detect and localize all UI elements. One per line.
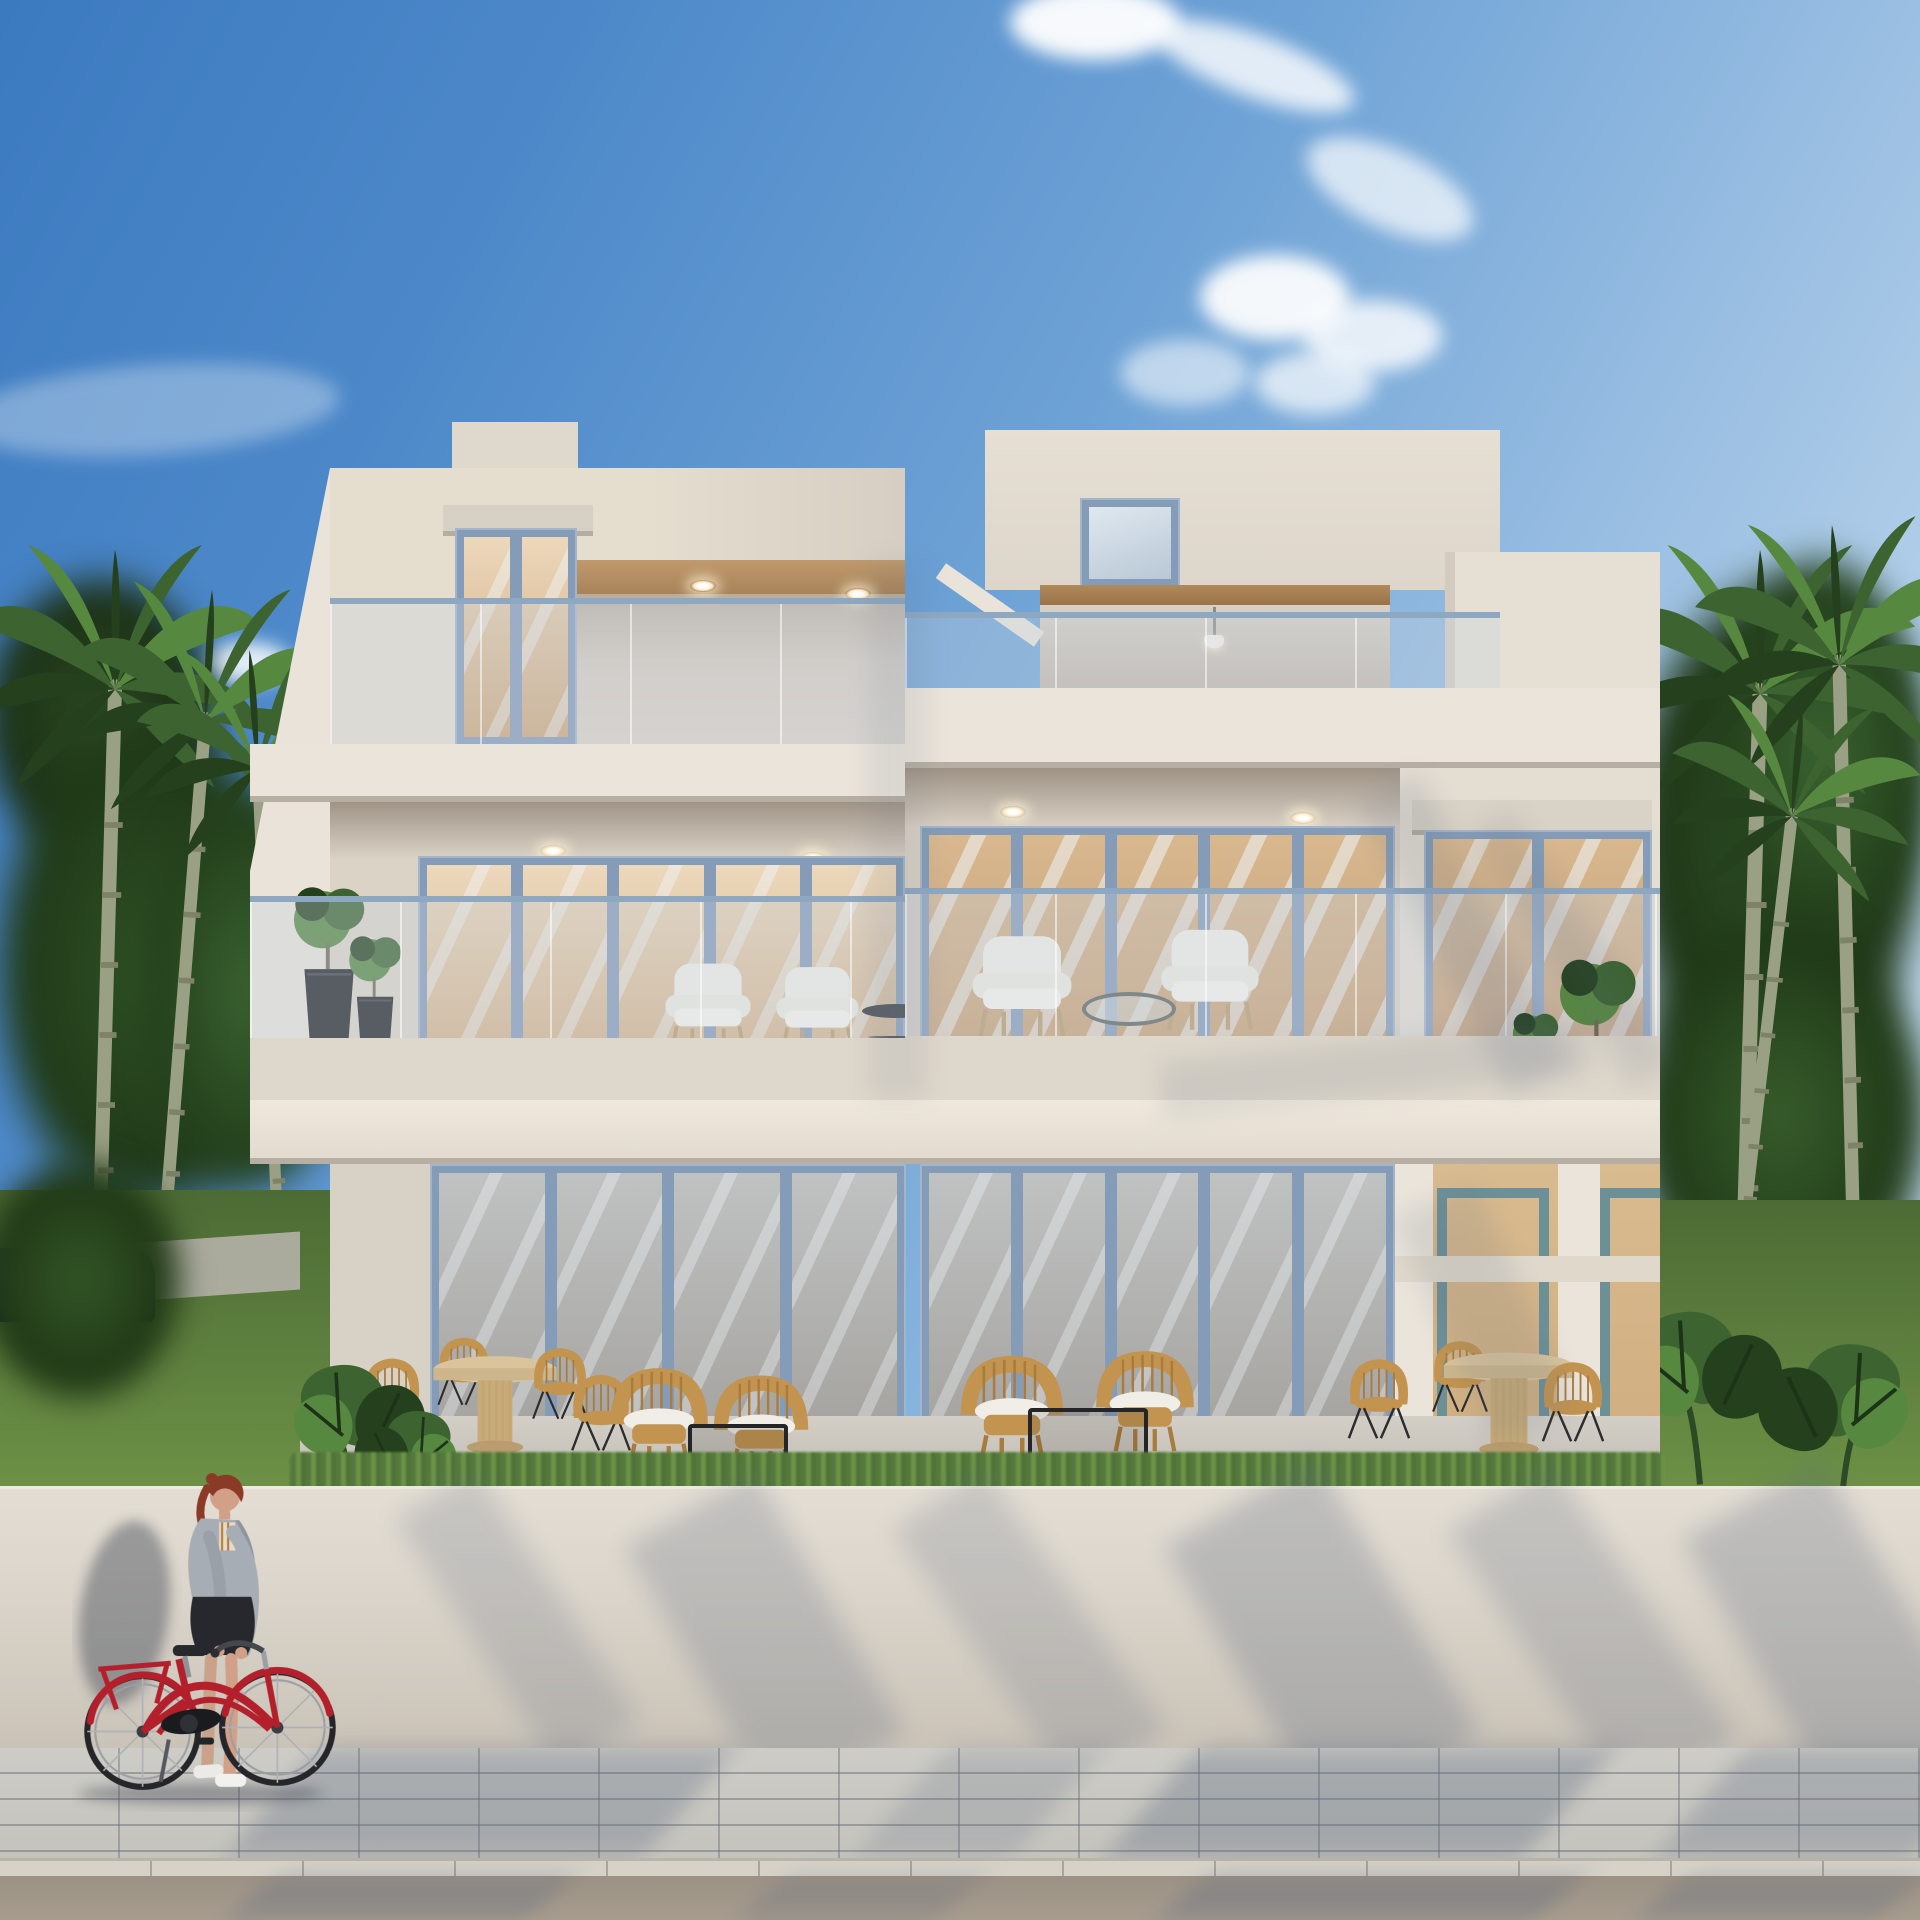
architectural-rendering (0, 0, 1920, 1920)
right-roof-terrace-railing (905, 612, 1500, 690)
cloud (1120, 340, 1250, 406)
left-balcony-parapet (250, 1038, 905, 1108)
loggia-beam (1040, 585, 1390, 605)
downlight (1000, 806, 1026, 818)
balcony-ceiling-shadow (905, 768, 1400, 828)
tree-shadow-on-road (1638, 1876, 1920, 1920)
downlight (690, 580, 716, 592)
cloud (1255, 352, 1375, 414)
facade-shade (868, 560, 928, 1100)
downlight (1290, 812, 1316, 824)
curb (0, 1858, 1920, 1876)
ground-slab (250, 1100, 1660, 1164)
left-balcony-railing (250, 896, 905, 1040)
right-parapet-band (905, 688, 1660, 768)
balcony-ceiling-shadow (330, 802, 905, 860)
glass-pane (1210, 1173, 1292, 1437)
tree-shadow-on-road (228, 1876, 572, 1920)
woman-with-bicycle (72, 1462, 344, 1812)
tree-shadow-on-road (1158, 1876, 1582, 1920)
penthouse-window (1080, 498, 1180, 588)
right-unit-back-slab (985, 430, 1500, 590)
left-mid-slab (250, 744, 905, 802)
glass-pane (1089, 507, 1171, 579)
left-roof-terrace-railing (330, 598, 905, 746)
